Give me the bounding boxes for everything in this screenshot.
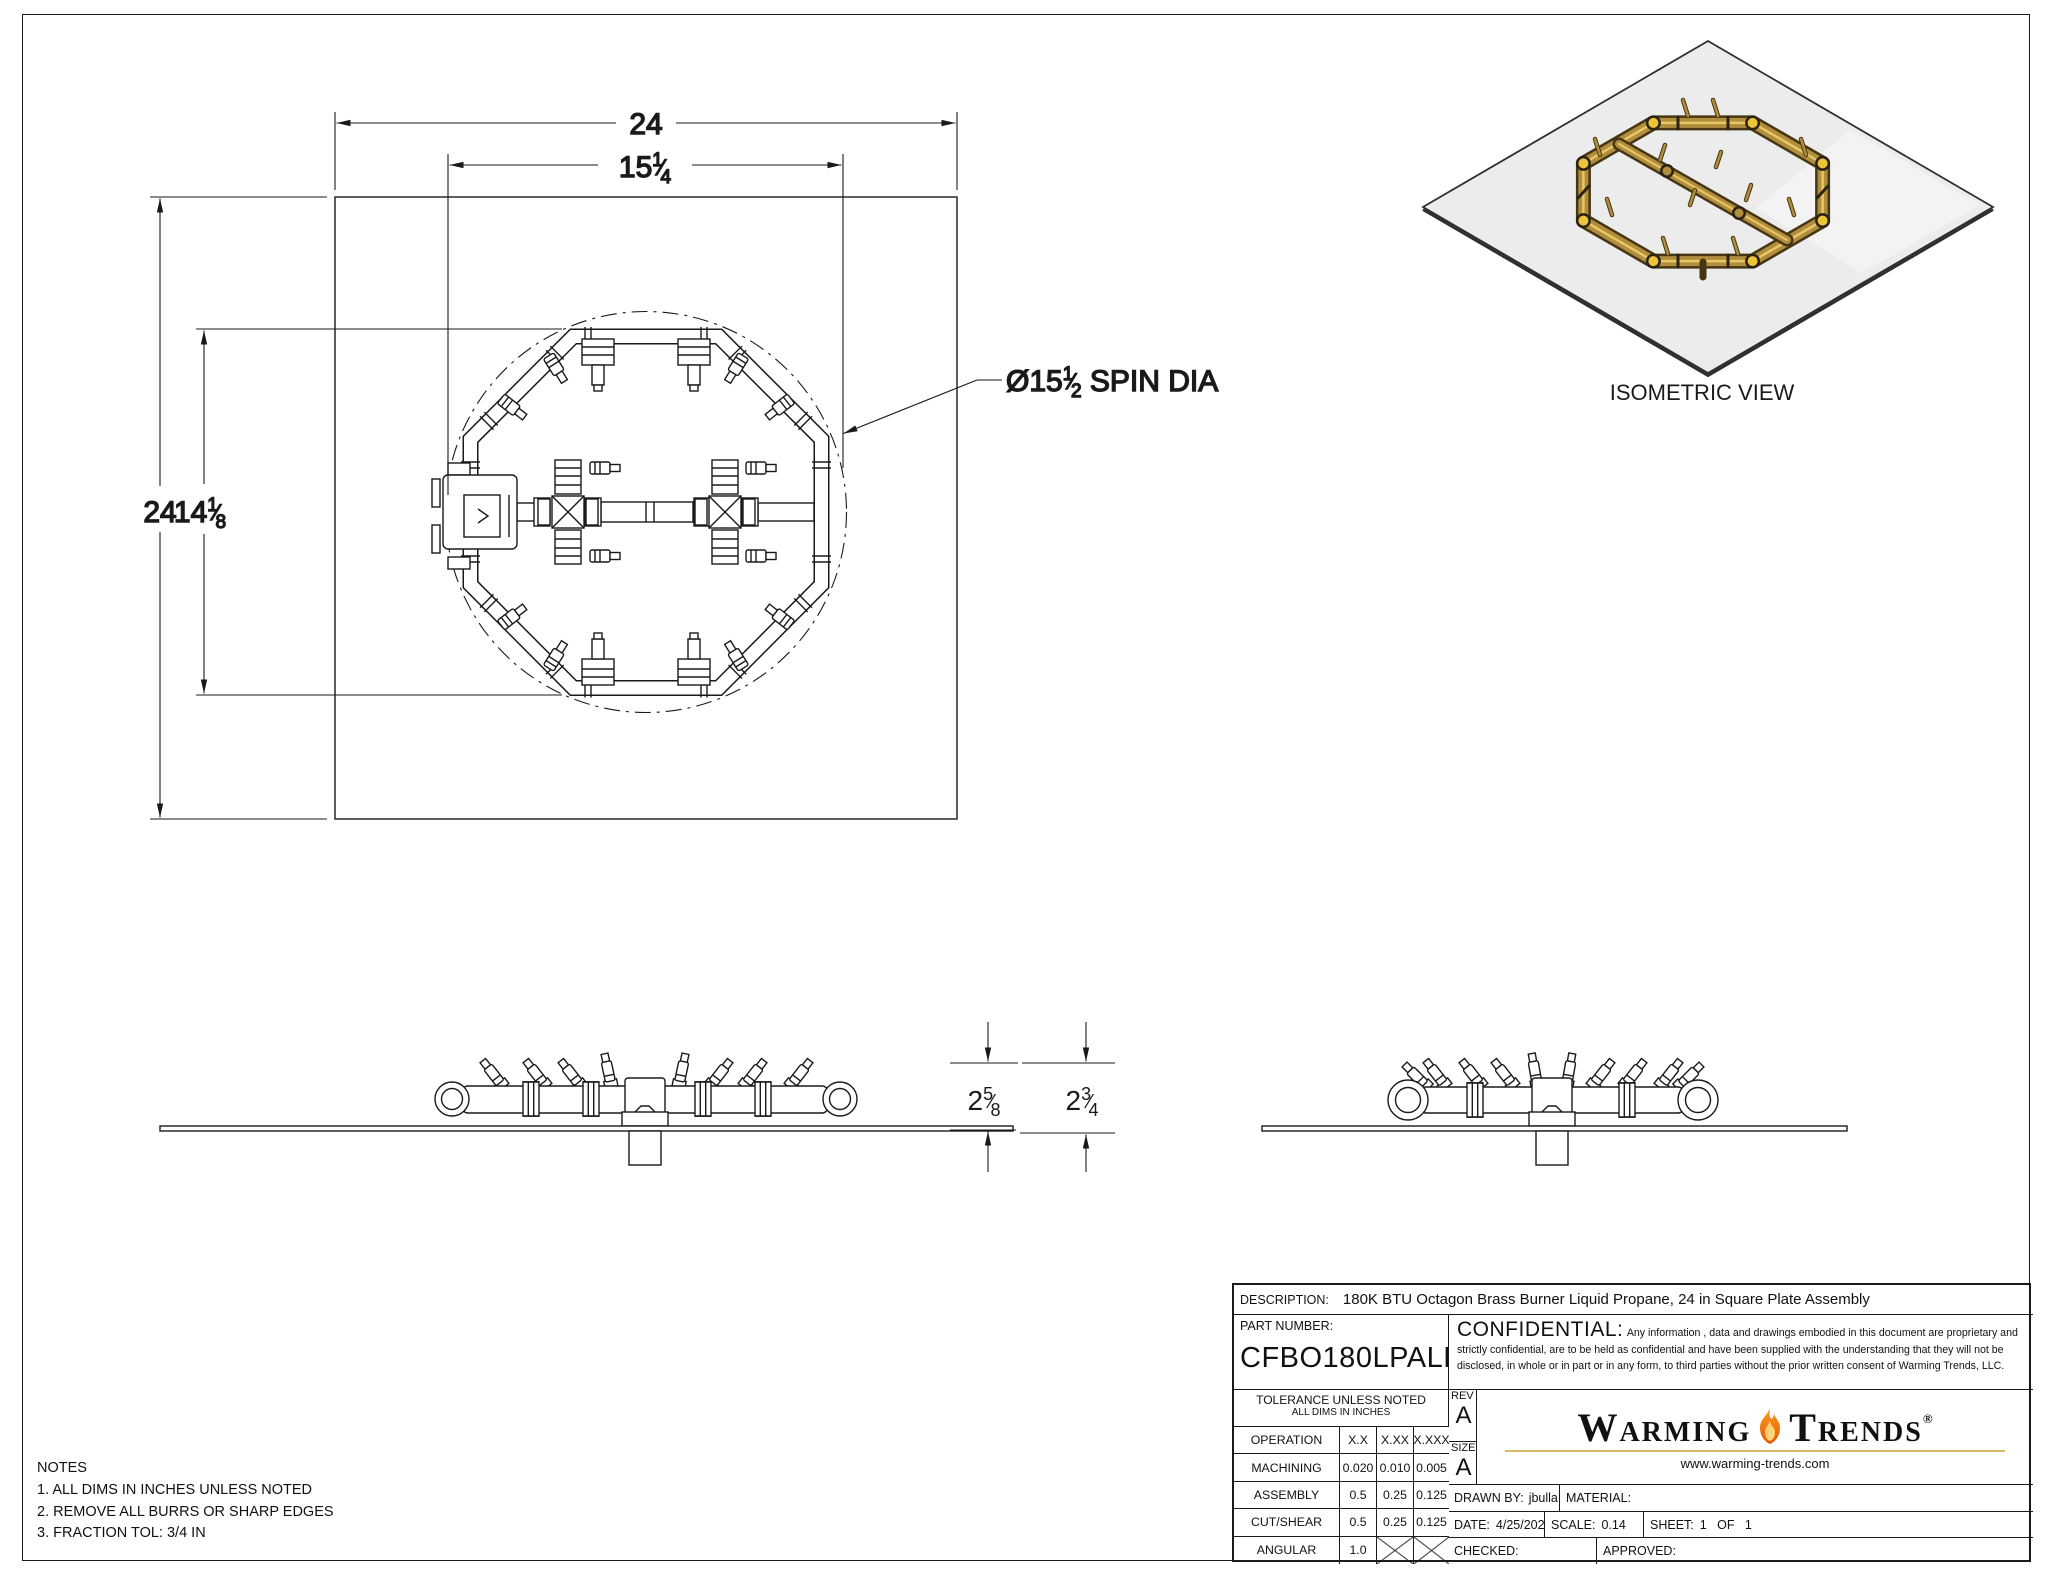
table-cell: 0.010 xyxy=(1377,1454,1414,1481)
material-cell: MATERIAL: xyxy=(1560,1485,2033,1512)
size-value: A xyxy=(1451,1454,1476,1482)
size-cell: SIZE A xyxy=(1449,1442,1477,1485)
plan-dimensions: 24 151⁄4 24 141⁄8 xyxy=(133,103,957,819)
plan-view: 24 151⁄4 24 141⁄8 Ø151⁄2 SPIN DIA xyxy=(133,103,1218,819)
dim-plate-height: 24 xyxy=(143,496,176,529)
part-number-value: CFBO180LPALPL24S xyxy=(1240,1342,1442,1375)
table-cell: 0.5 xyxy=(1340,1509,1377,1536)
table-cell: X.XX xyxy=(1377,1427,1414,1454)
tee-fitting xyxy=(625,1078,665,1114)
table-cell: 0.020 xyxy=(1340,1454,1377,1481)
table-cell: 0.25 xyxy=(1377,1509,1414,1536)
date-cell: DATE: 4/25/2022 xyxy=(1449,1512,1545,1538)
drawn-by-cell: DRAWN BY: jbulla xyxy=(1449,1485,1560,1512)
logo-cell: WARMING TRENDS ® www.warming-trends.com xyxy=(1477,1390,2033,1485)
table-cell: X.X xyxy=(1340,1427,1377,1454)
notes-title: NOTES xyxy=(37,1458,334,1480)
table-cell: ANGULAR xyxy=(1234,1537,1340,1564)
dim-burner-height-1: 25⁄8 xyxy=(968,1084,1001,1120)
note-item: 1. ALL DIMS IN INCHES UNLESS NOTED xyxy=(37,1480,334,1502)
table-row: ANGULAR 1.0 xyxy=(1234,1537,1449,1564)
registered-mark: ® xyxy=(1923,1412,1933,1425)
dim-plate-width: 24 xyxy=(629,108,662,141)
central-manifold xyxy=(432,460,814,569)
tolerance-header: TOLERANCE UNLESS NOTED ALL DIMS IN INCHE… xyxy=(1234,1390,1449,1427)
plate-edge xyxy=(160,1126,1013,1131)
note-item: 3. FRACTION TOL: 3/4 IN xyxy=(37,1523,334,1545)
table-cell: 0.25 xyxy=(1377,1482,1414,1509)
table-cell: 0.125 xyxy=(1414,1482,1449,1509)
rev-label: REV xyxy=(1451,1390,1476,1402)
table-cell: CUT/SHEAR xyxy=(1234,1509,1340,1536)
description-row: DESCRIPTION: 180K BTU Octagon Brass Burn… xyxy=(1234,1285,2033,1315)
gold-rule xyxy=(1505,1450,2005,1452)
spin-dia-label: Ø151⁄2 SPIN DIA xyxy=(1006,364,1218,402)
crossed-cell xyxy=(1377,1537,1414,1564)
table-cell: MACHINING xyxy=(1234,1454,1340,1481)
scale-value: 0.14 xyxy=(1601,1518,1625,1532)
table-row: MACHINING 0.020 0.010 0.005 xyxy=(1234,1454,1449,1481)
gas-inlet-stub xyxy=(1536,1131,1568,1165)
isometric-view: ISOMETRIC VIEW xyxy=(1423,41,1993,405)
table-row: CUT/SHEAR 0.5 0.25 0.125 xyxy=(1234,1509,1449,1536)
table-row: ASSEMBLY 0.5 0.25 0.125 xyxy=(1234,1482,1449,1509)
crossed-cell xyxy=(1414,1537,1449,1564)
plate-edge xyxy=(1262,1126,1847,1131)
side-view-right xyxy=(1262,1052,1847,1165)
checked-cell: CHECKED: xyxy=(1449,1538,1597,1564)
table-cell: OPERATION xyxy=(1234,1427,1340,1454)
description-value: 180K BTU Octagon Brass Burner Liquid Pro… xyxy=(1343,1291,1870,1308)
tee-fitting xyxy=(1532,1078,1572,1114)
drawn-by-value: jbulla xyxy=(1529,1491,1558,1505)
tolerance-title: TOLERANCE UNLESS NOTED xyxy=(1234,1393,1448,1407)
table-cell: 0.125 xyxy=(1414,1509,1449,1536)
date-value: 4/25/2022 xyxy=(1496,1518,1545,1532)
side-view-left xyxy=(160,1052,1013,1165)
table-cell: 0.005 xyxy=(1414,1454,1449,1481)
part-number-label: PART NUMBER: xyxy=(1240,1319,1442,1333)
note-item: 2. REMOVE ALL BURRS OR SHARP EDGES xyxy=(37,1502,334,1524)
confidential-label: CONFIDENTIAL: xyxy=(1457,1318,1623,1341)
tolerance-table: OPERATION X.X X.XX X.XXX MACHINING 0.020… xyxy=(1234,1427,1449,1564)
table-cell: 0.5 xyxy=(1340,1482,1377,1509)
cross-fitting xyxy=(538,460,598,564)
dim-burner-height: 141⁄8 xyxy=(174,495,226,533)
rev-cell: REV A xyxy=(1449,1390,1477,1442)
table-row: OPERATION X.X X.XX X.XXX xyxy=(1234,1427,1449,1454)
rev-value: A xyxy=(1451,1402,1476,1430)
sheet-value: 1 OF 1 xyxy=(1700,1518,1752,1532)
description-label: DESCRIPTION: xyxy=(1240,1293,1329,1307)
dim-burner-height-2: 23⁄4 xyxy=(1066,1084,1099,1120)
isometric-view-label: ISOMETRIC VIEW xyxy=(1610,380,1795,405)
spin-dia-callout: Ø151⁄2 SPIN DIA xyxy=(844,364,1219,434)
table-cell: X.XXX xyxy=(1414,1427,1449,1454)
tolerance-subtitle: ALL DIMS IN INCHES xyxy=(1234,1407,1448,1418)
notes-block: NOTES 1. ALL DIMS IN INCHES UNLESS NOTED… xyxy=(37,1458,334,1545)
approved-cell: APPROVED: xyxy=(1597,1538,2033,1564)
size-label: SIZE xyxy=(1451,1442,1476,1454)
flame-icon xyxy=(1757,1407,1783,1445)
part-number-cell: PART NUMBER: CFBO180LPALPL24S xyxy=(1234,1315,1449,1390)
scale-cell: SCALE: 0.14 xyxy=(1545,1512,1644,1538)
side-dimensions: 25⁄8 23⁄4 xyxy=(950,1022,1115,1172)
cross-fitting xyxy=(695,460,755,564)
gas-inlet-stub xyxy=(629,1131,661,1165)
drawing-sheet: 24 151⁄4 24 141⁄8 Ø151⁄2 SPIN DIA xyxy=(0,0,2048,1583)
website-url: www.warming-trends.com xyxy=(1681,1456,1830,1471)
warming-trends-logo: WARMING TRENDS ® xyxy=(1577,1403,1932,1448)
title-block: DESCRIPTION: 180K BTU Octagon Brass Burn… xyxy=(1232,1283,2031,1562)
table-cell: ASSEMBLY xyxy=(1234,1482,1340,1509)
sheet-cell: SHEET: 1 OF 1 xyxy=(1644,1512,2033,1538)
confidential-cell: CONFIDENTIAL: Any information , data and… xyxy=(1449,1315,2033,1390)
table-cell: 1.0 xyxy=(1340,1537,1377,1564)
